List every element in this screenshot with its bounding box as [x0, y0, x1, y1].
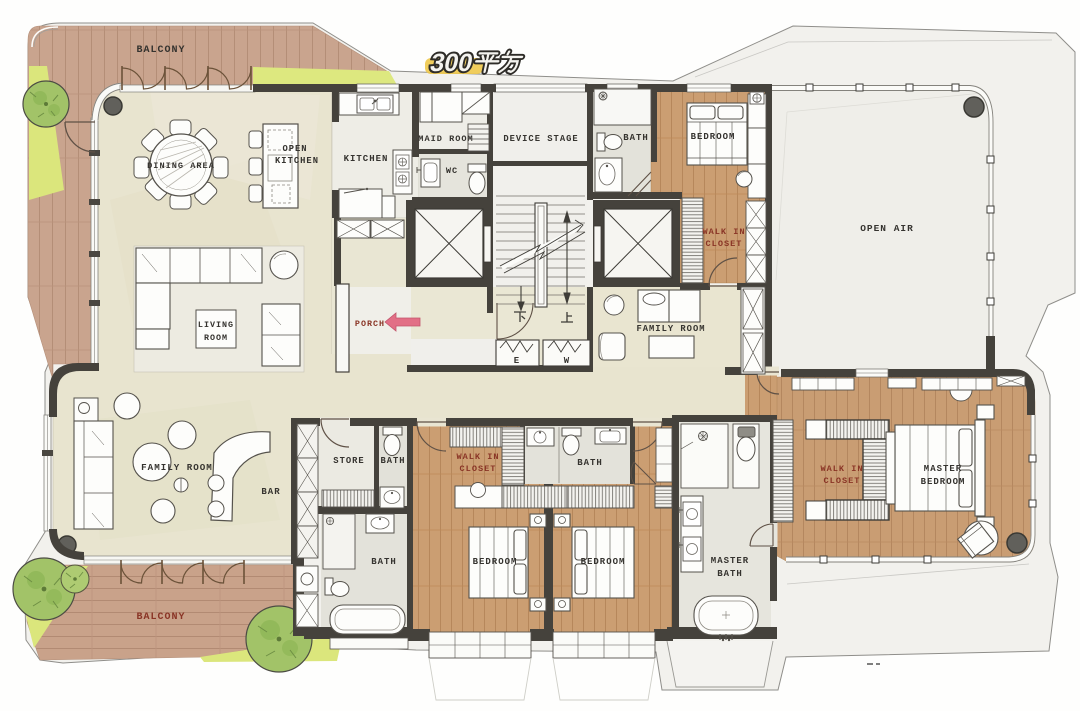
svg-text:OPEN: OPEN	[282, 144, 307, 154]
svg-text:LIVING: LIVING	[198, 320, 234, 330]
svg-text:MAID ROOM: MAID ROOM	[418, 134, 473, 144]
svg-text:BALCONY: BALCONY	[136, 612, 185, 623]
svg-text:E: E	[514, 356, 520, 366]
svg-text:CLOSET: CLOSET	[706, 239, 743, 249]
svg-text:BATH: BATH	[380, 456, 405, 466]
svg-text:MASTER: MASTER	[711, 556, 749, 566]
svg-text:ROOM: ROOM	[204, 333, 228, 343]
svg-text:300: 300	[428, 49, 476, 77]
svg-text:CLOSET: CLOSET	[460, 464, 497, 474]
svg-text:DEVICE STAGE: DEVICE STAGE	[503, 134, 578, 144]
svg-text:OPEN AIR: OPEN AIR	[860, 223, 914, 234]
svg-text:BEDROOM: BEDROOM	[473, 557, 518, 567]
svg-text:FAMILY ROOM: FAMILY ROOM	[636, 324, 705, 334]
svg-text:DINING AREA: DINING AREA	[147, 161, 215, 171]
svg-text:WALK IN: WALK IN	[702, 227, 745, 237]
svg-text:STORE: STORE	[333, 456, 364, 466]
svg-text:BATH: BATH	[577, 458, 603, 468]
svg-text:KITCHEN: KITCHEN	[275, 156, 319, 166]
svg-text:BAR: BAR	[261, 487, 280, 497]
svg-text:W: W	[564, 356, 570, 366]
svg-text:BALCONY: BALCONY	[136, 45, 185, 56]
svg-text:BEDROOM: BEDROOM	[581, 557, 626, 567]
svg-text:KITCHEN: KITCHEN	[344, 154, 389, 164]
svg-text:FAMILY ROOM: FAMILY ROOM	[141, 462, 213, 473]
svg-text:BEDROOM: BEDROOM	[691, 132, 736, 142]
svg-text:CLOSET: CLOSET	[824, 476, 861, 486]
svg-text:WALK IN: WALK IN	[820, 464, 863, 474]
svg-text:MASTER: MASTER	[924, 464, 962, 474]
svg-text:WC: WC	[446, 166, 458, 176]
svg-text:BATH: BATH	[371, 557, 397, 567]
svg-text:PORCH: PORCH	[355, 319, 385, 329]
svg-text:WALK IN: WALK IN	[456, 452, 499, 462]
svg-text:BEDROOM: BEDROOM	[921, 477, 966, 487]
svg-text:BATH: BATH	[623, 133, 649, 143]
svg-text:BATH: BATH	[717, 569, 743, 579]
